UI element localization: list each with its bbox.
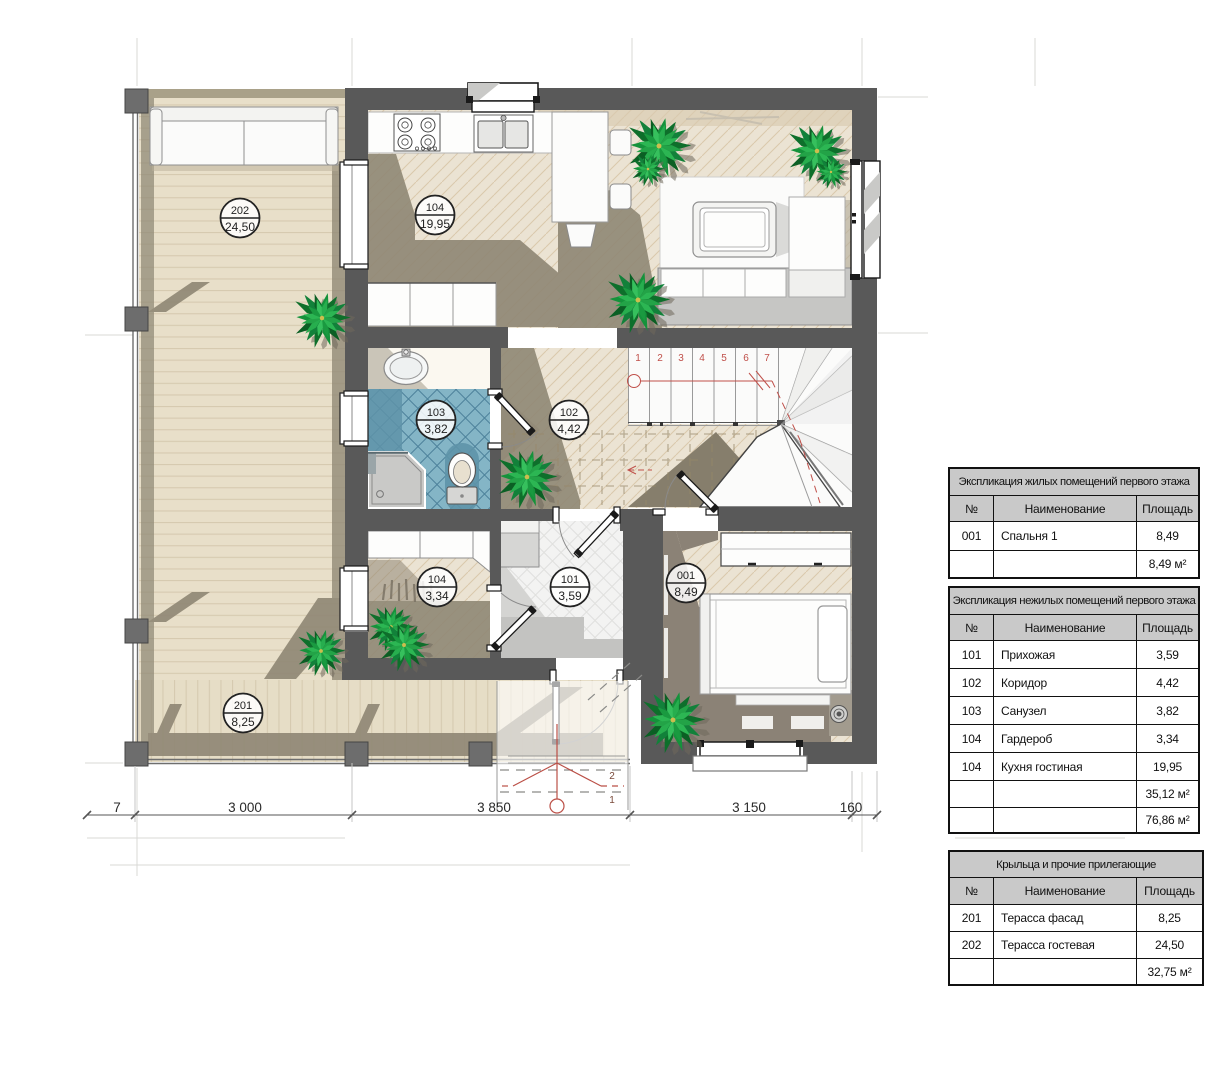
svg-text:8,25: 8,25 xyxy=(231,715,255,729)
svg-text:7: 7 xyxy=(764,353,770,364)
svg-text:19,95: 19,95 xyxy=(420,217,450,231)
svg-text:1: 1 xyxy=(609,795,615,806)
svg-text:102: 102 xyxy=(560,407,578,419)
svg-text:8,49: 8,49 xyxy=(674,585,698,599)
svg-text:104: 104 xyxy=(428,574,446,586)
svg-text:3,59: 3,59 xyxy=(558,589,582,603)
svg-text:1: 1 xyxy=(635,353,641,364)
svg-text:5: 5 xyxy=(721,353,727,364)
svg-text:001: 001 xyxy=(677,570,695,582)
svg-text:3 850: 3 850 xyxy=(477,800,511,815)
svg-text:3,82: 3,82 xyxy=(424,422,448,436)
svg-text:202: 202 xyxy=(231,205,249,217)
svg-text:3 150: 3 150 xyxy=(732,800,766,815)
svg-text:6: 6 xyxy=(743,353,749,364)
svg-text:4: 4 xyxy=(699,353,705,364)
svg-text:103: 103 xyxy=(427,407,445,419)
svg-text:104: 104 xyxy=(426,202,444,214)
svg-text:3: 3 xyxy=(678,353,684,364)
svg-text:2: 2 xyxy=(609,771,615,782)
svg-text:4,42: 4,42 xyxy=(557,422,581,436)
svg-text:2: 2 xyxy=(657,353,663,364)
svg-text:160: 160 xyxy=(840,800,863,815)
svg-text:24,50: 24,50 xyxy=(225,220,255,234)
svg-text:7: 7 xyxy=(113,800,121,815)
svg-text:101: 101 xyxy=(561,574,579,586)
svg-text:201: 201 xyxy=(234,700,252,712)
svg-text:3 000: 3 000 xyxy=(228,800,262,815)
svg-text:3,34: 3,34 xyxy=(425,589,449,603)
